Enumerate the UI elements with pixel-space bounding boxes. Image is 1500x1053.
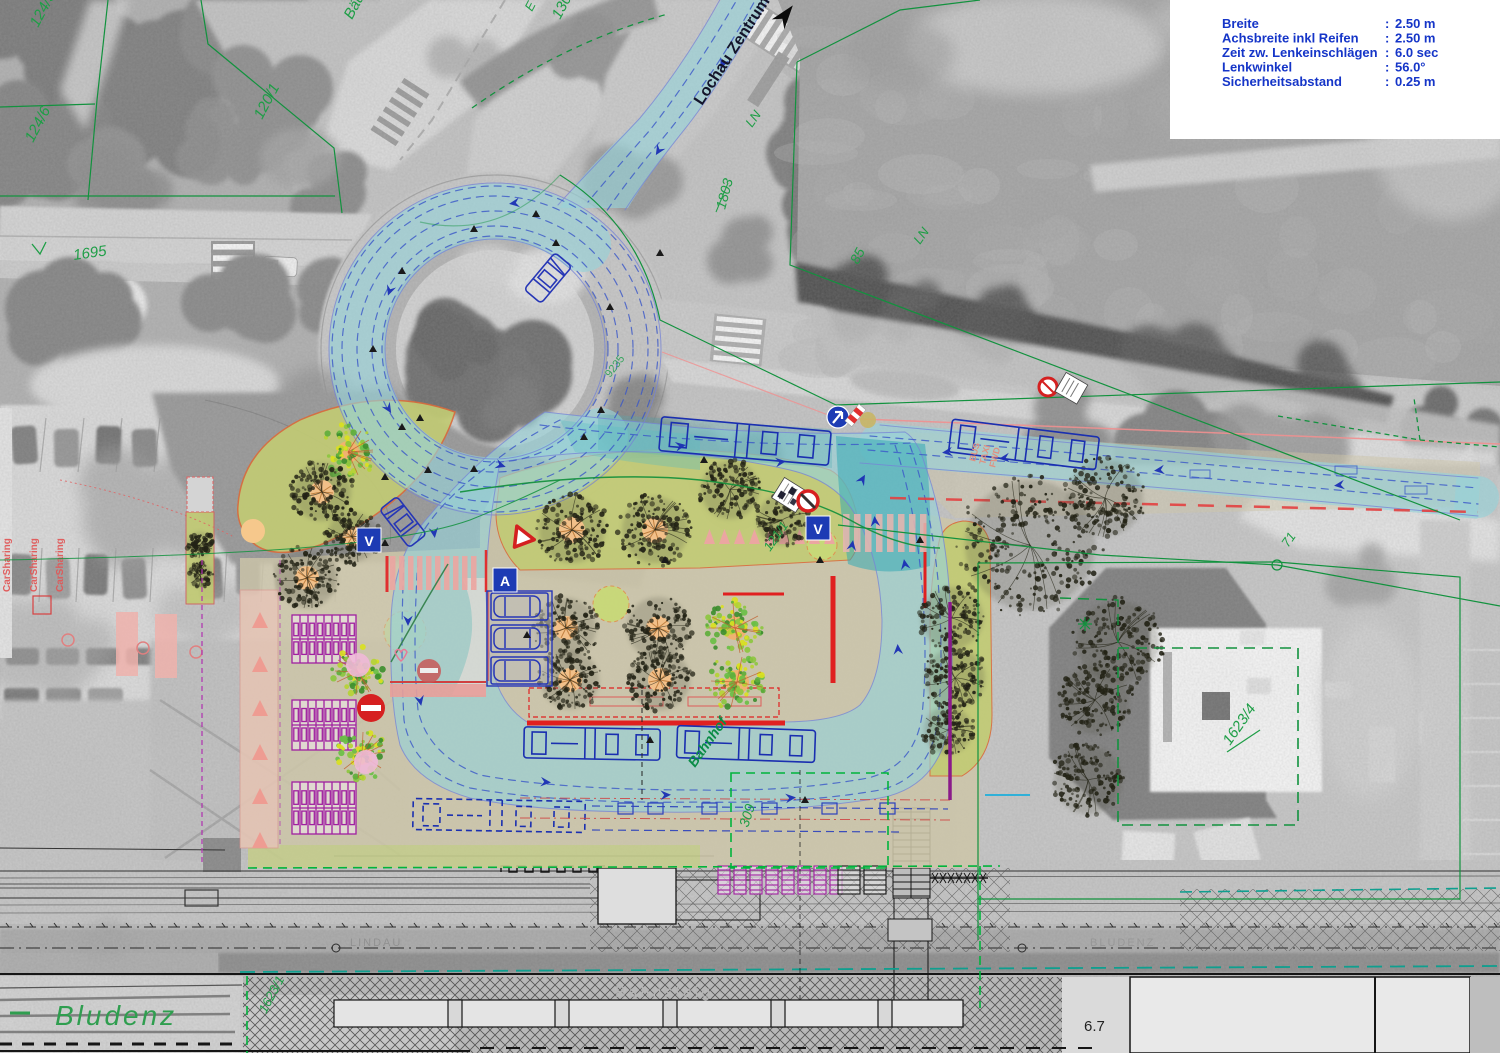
svg-text:LINDAU: LINDAU (350, 937, 402, 949)
svg-text:CarSharing: CarSharing (29, 538, 40, 592)
svg-text:Breite: Breite (1222, 16, 1259, 31)
svg-text::: : (1385, 74, 1389, 89)
svg-text:Bludenz: Bludenz (55, 1000, 177, 1031)
svg-text:BLUDENZ: BLUDENZ (1090, 937, 1155, 949)
svg-text:V: V (813, 521, 823, 537)
svg-text:56.0°: 56.0° (1395, 60, 1426, 75)
svg-text:Sicherheitsabstand: Sicherheitsabstand (1222, 74, 1342, 89)
svg-text:2.50 m: 2.50 m (1395, 31, 1435, 46)
svg-text:CarSharing: CarSharing (2, 538, 13, 592)
svg-text:A: A (500, 573, 510, 589)
svg-text::: : (1385, 31, 1389, 46)
svg-text:Bahnsteig: Bahnsteig (615, 984, 713, 1001)
svg-text:Zeit zw. Lenkeinschlägen: Zeit zw. Lenkeinschlägen (1222, 45, 1378, 60)
svg-text::: : (1385, 60, 1389, 75)
svg-text:2.50 m: 2.50 m (1395, 16, 1435, 31)
svg-text:6.0 sec: 6.0 sec (1395, 45, 1438, 60)
svg-text:6.7: 6.7 (1084, 1018, 1105, 1035)
svg-text:V: V (364, 533, 374, 549)
svg-text:CarSharing: CarSharing (55, 538, 66, 592)
svg-text::: : (1385, 45, 1389, 60)
svg-text:Lenkwinkel: Lenkwinkel (1222, 60, 1292, 75)
svg-text::: : (1385, 16, 1389, 31)
svg-text:0.25 m: 0.25 m (1395, 74, 1435, 89)
svg-text:Achsbreite inkl Reifen: Achsbreite inkl Reifen (1222, 31, 1359, 46)
